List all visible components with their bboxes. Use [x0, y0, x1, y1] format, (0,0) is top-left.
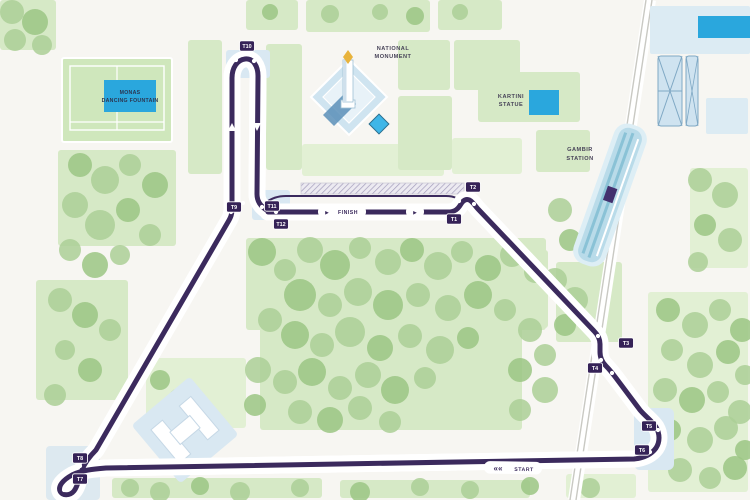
tree-canopy	[694, 214, 716, 236]
turn-number: T9	[231, 205, 237, 211]
tree-canopy	[699, 467, 721, 489]
tree-canopy	[426, 336, 454, 364]
tree-canopy	[274, 259, 296, 281]
tree-canopy	[298, 358, 326, 386]
tree-canopy	[355, 362, 381, 388]
turn-label-T5: T5	[642, 421, 657, 431]
turn-number: T1	[451, 217, 457, 223]
turn-label-T9: T9	[227, 202, 242, 212]
tree-canopy	[349, 237, 371, 259]
tree-canopy	[262, 4, 278, 20]
tree-canopy	[318, 293, 342, 317]
finish-arrow2-icon: ►	[412, 210, 418, 216]
tree-canopy	[310, 333, 334, 357]
tree-canopy	[532, 377, 558, 403]
tree-canopy	[59, 239, 81, 261]
tower-buildings	[658, 56, 698, 126]
kartini-label-1: KARTINI	[498, 94, 524, 100]
tree-canopy	[99, 319, 121, 341]
turn-label-T6: T6	[635, 445, 650, 455]
turn-number: T11	[268, 204, 277, 210]
tree-canopy	[335, 317, 365, 347]
apex-dot	[610, 371, 614, 375]
gambir-label-1: GAMBIR	[567, 147, 593, 153]
tree-canopy	[321, 5, 339, 23]
tree-canopy	[258, 308, 282, 332]
tree-canopy	[373, 290, 403, 320]
tree-canopy	[709, 299, 731, 321]
turn-label-T2: T2	[466, 182, 481, 192]
tree-canopy	[406, 7, 424, 25]
turn-number: T12	[276, 222, 285, 228]
apex-dot	[62, 488, 66, 492]
turn-label-T12: T12	[274, 219, 289, 229]
apex-dot	[234, 58, 238, 62]
apex-dot	[457, 199, 461, 203]
tree-canopy	[718, 228, 742, 252]
tree-canopy	[712, 182, 738, 208]
tree-canopy	[679, 387, 705, 413]
tree-canopy	[707, 381, 729, 403]
tree-canopy	[32, 35, 52, 55]
tree-canopy	[661, 339, 683, 361]
tree-canopy	[273, 370, 297, 394]
tree-canopy	[424, 252, 452, 280]
tree-canopy	[4, 29, 26, 51]
turn-label-T11: T11	[265, 201, 280, 211]
tree-canopy	[398, 324, 422, 348]
tree-canopy	[72, 302, 98, 328]
tree-canopy	[85, 210, 115, 240]
park-block	[452, 138, 522, 174]
tree-canopy	[62, 192, 88, 218]
finish-label: FINISH	[338, 210, 358, 216]
tree-canopy	[291, 479, 309, 497]
turn-number: T5	[646, 424, 652, 430]
finish-arrow-icon: ►	[324, 210, 330, 216]
turn-number: T3	[623, 341, 629, 347]
park-block	[112, 478, 322, 498]
tree-canopy	[475, 255, 501, 281]
national-monument-label-2: MONUMENT	[375, 54, 412, 60]
tree-canopy	[716, 340, 740, 364]
tree-canopy	[244, 394, 266, 416]
tree-canopy	[150, 370, 170, 390]
tree-canopy	[348, 396, 372, 420]
turn-number: T4	[592, 366, 598, 372]
start-chevrons-icon: ««	[493, 464, 503, 473]
tree-canopy	[344, 278, 372, 306]
start-line-marker: «« START	[484, 461, 542, 475]
tree-canopy	[682, 312, 708, 338]
tree-canopy	[451, 241, 473, 263]
tree-canopy	[281, 321, 309, 349]
tree-canopy	[317, 407, 343, 433]
apex-dot	[472, 202, 476, 206]
tree-canopy	[78, 358, 102, 382]
park-block	[188, 40, 222, 174]
tree-canopy	[55, 340, 75, 360]
fountain-label-2: DANCING FOUNTAIN	[102, 98, 159, 104]
tree-canopy	[381, 376, 409, 404]
tree-canopy	[68, 153, 92, 177]
tree-canopy	[372, 4, 388, 20]
tree-canopy	[284, 279, 316, 311]
tree-canopy	[414, 367, 436, 389]
start-label: START	[514, 467, 534, 473]
turn-number: T8	[77, 456, 83, 462]
tree-canopy	[91, 166, 119, 194]
tree-canopy	[248, 238, 276, 266]
tree-canopy	[48, 288, 72, 312]
tree-canopy	[521, 477, 539, 495]
apex-dot	[252, 59, 256, 63]
tree-canopy	[461, 481, 479, 499]
fountain-label-1: MONAS	[120, 90, 141, 96]
park-block	[266, 44, 302, 170]
park-block	[398, 96, 452, 170]
tree-canopy	[714, 416, 738, 440]
tree-canopy	[116, 198, 140, 222]
tree-canopy	[82, 252, 108, 278]
turn-label-T10: T10	[240, 41, 255, 51]
tree-canopy	[44, 384, 66, 406]
turn-label-T4: T4	[588, 363, 603, 373]
tree-canopy	[687, 427, 713, 453]
turn-number: T10	[242, 44, 251, 50]
tree-canopy	[435, 295, 461, 321]
tree-canopy	[411, 478, 429, 496]
gambir-label-2: STATION	[566, 156, 593, 162]
tree-canopy	[191, 477, 209, 495]
tree-canopy	[452, 4, 468, 20]
turn-label-T7: T7	[73, 474, 88, 484]
tree-canopy	[0, 0, 24, 24]
tree-canopy	[400, 238, 424, 262]
tree-canopy	[22, 9, 48, 35]
tree-canopy	[457, 327, 479, 349]
tree-canopy	[534, 344, 556, 366]
tree-canopy	[375, 249, 401, 275]
turn-number: T7	[77, 477, 83, 483]
apex-dot	[260, 205, 264, 209]
turn-number: T2	[470, 185, 476, 191]
tree-canopy	[494, 299, 516, 321]
tree-canopy	[297, 237, 323, 263]
tree-canopy	[548, 198, 572, 222]
apex-dot	[78, 464, 82, 468]
grandstand-band	[301, 183, 464, 194]
map-canvas: ► FINISH ► «« START T1T2T3T4T5T6T7T8T9T1…	[0, 0, 750, 500]
tree-canopy	[139, 224, 161, 246]
tree-canopy	[518, 318, 542, 342]
tree-canopy	[688, 168, 712, 192]
pool-feature	[698, 16, 750, 38]
tree-canopy	[464, 281, 492, 309]
tree-canopy	[580, 478, 600, 498]
tree-canopy	[509, 399, 531, 421]
tree-canopy	[121, 479, 139, 497]
fountain-pool	[104, 80, 156, 112]
tree-canopy	[406, 283, 430, 307]
tree-canopy	[379, 411, 401, 433]
tree-canopy	[653, 378, 677, 402]
tree-canopy	[508, 358, 532, 382]
tree-canopy	[142, 172, 168, 198]
park-block	[438, 0, 502, 30]
tree-canopy	[245, 357, 271, 383]
tree-canopy	[723, 456, 747, 480]
turn-label-T1: T1	[447, 214, 462, 224]
circuit-map: ► FINISH ► «« START T1T2T3T4T5T6T7T8T9T1…	[0, 0, 750, 500]
kartini-statue-pool	[529, 90, 559, 115]
national-monument-label-1: NATIONAL	[377, 46, 410, 52]
tree-canopy	[288, 400, 312, 424]
tree-canopy	[110, 245, 130, 265]
tree-canopy	[688, 252, 708, 272]
turn-label-T8: T8	[73, 453, 88, 463]
turn-label-T3: T3	[619, 338, 634, 348]
tree-canopy	[656, 298, 680, 322]
kartini-label-2: STATUE	[499, 102, 524, 108]
tree-canopy	[687, 352, 713, 378]
tree-canopy	[328, 376, 352, 400]
tree-canopy	[119, 154, 141, 176]
tree-canopy	[367, 335, 393, 361]
tree-canopy	[320, 250, 350, 280]
turn-number: T6	[639, 448, 645, 454]
apex-dot	[596, 334, 600, 338]
apex-dot	[599, 358, 603, 362]
